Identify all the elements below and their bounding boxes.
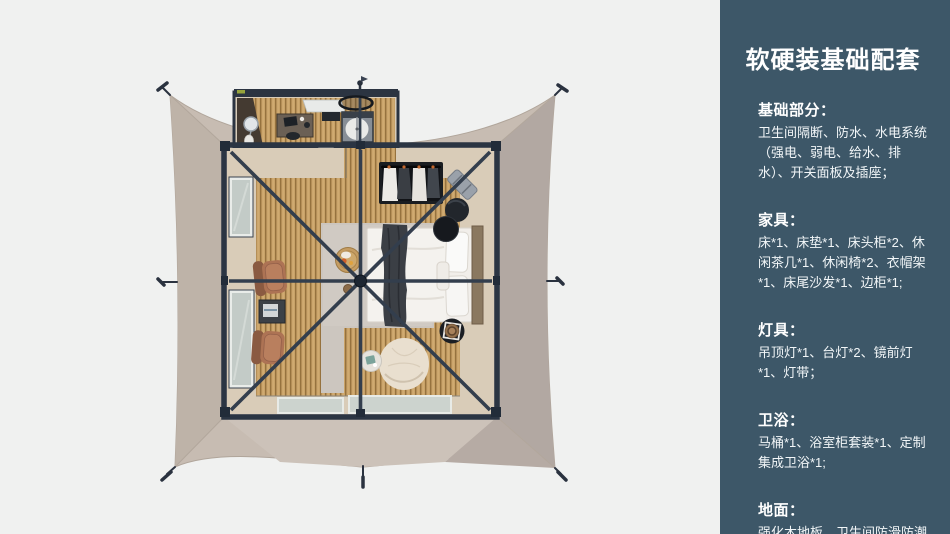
headboard-bench — [472, 226, 483, 324]
section-body: 床*1、床垫*1、床头柜*2、休闲茶几*1、休闲椅*2、衣帽架*1、床尾沙发*1… — [758, 233, 930, 293]
lounge-chair-upper — [252, 258, 287, 296]
bean-bag-pouf — [379, 338, 429, 390]
section-bathroom: 卫浴： 马桶*1、浴室柜套装*1、定制集成卫浴*1; — [758, 409, 930, 473]
magazine-table — [259, 300, 285, 323]
section-body: 马桶*1、浴室柜套装*1、定制集成卫浴*1; — [758, 433, 930, 473]
window-left-upper — [229, 177, 253, 237]
furnishing-info-panel: 软硬装基础配套 基础部分： 卫生间隔断、防水、水电系统（强电、弱电、给水、排水）… — [720, 0, 950, 534]
oval-mirror — [340, 97, 373, 110]
section-body: 卫生间隔断、防水、水电系统（强电、弱电、给水、排水）、开关面板及插座； — [758, 123, 930, 183]
small-side-table — [361, 351, 382, 372]
bathroom-vanity — [277, 114, 313, 140]
section-heading: 地面： — [758, 499, 930, 520]
section-body: 吊顶灯*1、台灯*2、镜前灯*1、灯带； — [758, 343, 930, 383]
section-body: 强化木地板、卫生间防滑防潮石塑板； — [758, 523, 930, 534]
bathroom-counter — [322, 112, 340, 121]
tent-render-pane — [0, 0, 720, 534]
panel-title: 软硬装基础配套 — [724, 40, 942, 75]
bed — [367, 224, 483, 327]
side-table-with-hat — [440, 319, 465, 344]
slide-page: 软硬装基础配套 基础部分： 卫生间隔断、防水、水电系统（强电、弱电、给水、排水）… — [0, 0, 950, 534]
section-heading: 基础部分： — [758, 99, 930, 120]
section-furniture: 家具： 床*1、床垫*1、床头柜*2、休闲茶几*1、休闲椅*2、衣帽架*1、床尾… — [758, 209, 930, 293]
section-heading: 灯具： — [758, 319, 930, 340]
window-left-lower — [229, 290, 254, 388]
section-flooring: 地面： 强化木地板、卫生间防滑防潮石塑板； — [758, 499, 930, 534]
section-lighting: 灯具： 吊顶灯*1、台灯*2、镜前灯*1、灯带； — [758, 319, 930, 383]
stool-side-table — [434, 217, 459, 242]
panel-sections: 基础部分： 卫生间隔断、防水、水电系统（强电、弱电、给水、排水）、开关面板及插座… — [720, 99, 950, 534]
lumbar-pillow — [437, 262, 449, 290]
tent-trim-accent — [237, 90, 245, 94]
clothes-rack — [379, 162, 443, 204]
bathroom-annex — [234, 89, 398, 150]
section-heading: 家具： — [758, 209, 930, 230]
canvas-left-facet — [170, 95, 224, 467]
roof-hub — [355, 275, 367, 287]
section-heading: 卫浴： — [758, 409, 930, 430]
section-basics: 基础部分： 卫生间隔断、防水、水电系统（强电、弱电、给水、排水）、开关面板及插座… — [758, 99, 930, 183]
shower-unit — [342, 112, 373, 142]
tent-floorplan-illustration — [0, 0, 720, 534]
window-bottom-left — [278, 398, 343, 413]
